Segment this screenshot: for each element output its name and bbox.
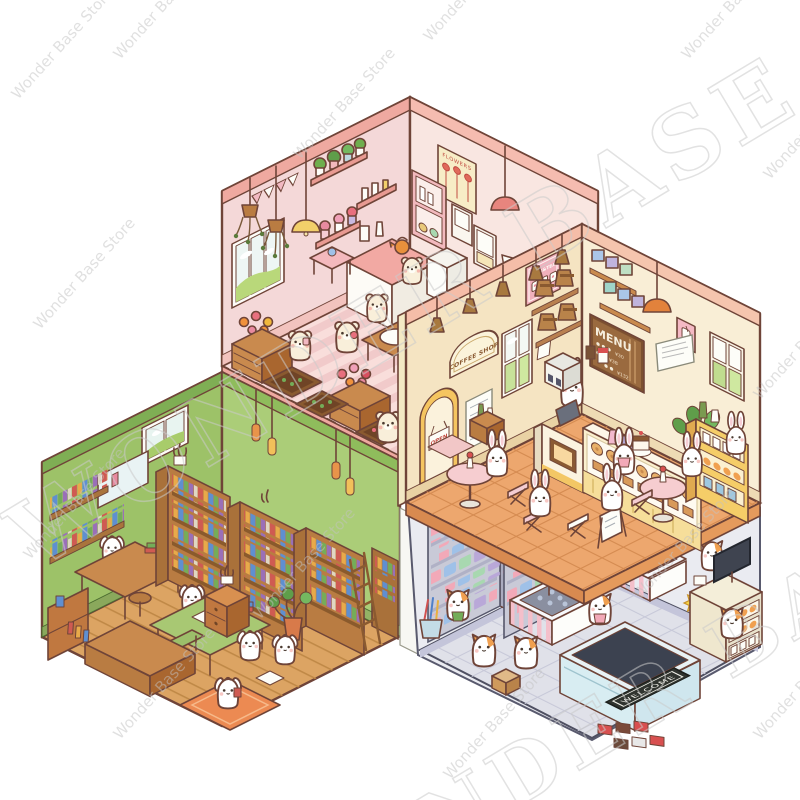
cat-character	[515, 637, 538, 669]
svg-text:Wonder Base Store: Wonder Base Store	[420, 0, 529, 45]
svg-text:Wonder Base Store: Wonder Base Store	[110, 0, 219, 63]
svg-text:Wonder Base Store: Wonder Base Store	[8, 0, 117, 103]
puppy-character	[236, 630, 264, 660]
svg-text:Wonder Base Store: Wonder Base Store	[30, 214, 139, 333]
milk-jug	[360, 226, 369, 241]
cat-overalls	[452, 612, 464, 621]
bottle	[376, 222, 383, 236]
miniature-house-scene: FLOWERS	[0, 0, 800, 800]
bear-character	[376, 412, 400, 442]
register	[694, 576, 706, 585]
puppy-character	[271, 634, 299, 664]
cat-character	[473, 635, 496, 667]
product-illustration: FLOWERS	[0, 0, 800, 800]
